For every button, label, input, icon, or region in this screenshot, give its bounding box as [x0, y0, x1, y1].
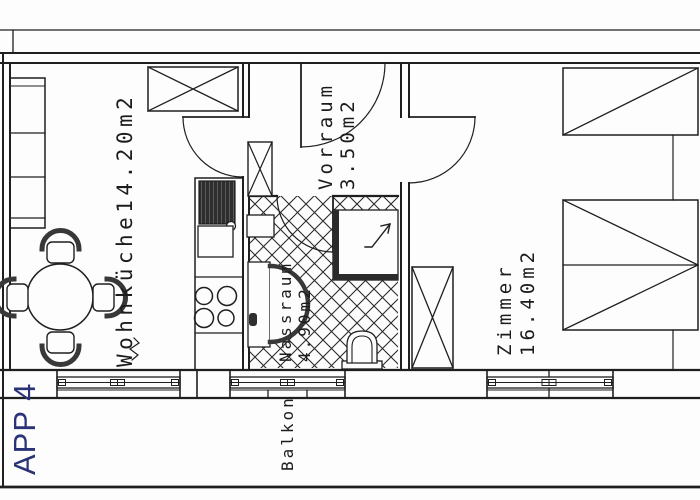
- bottom-wall-windows: [0, 370, 700, 398]
- room-name: Nassraum: [276, 261, 295, 362]
- kitchen-sink-drainer: [199, 181, 235, 224]
- apartment-title: APP 4: [8, 383, 42, 475]
- room-label-zimmer: Zimmer 16.40m2: [494, 248, 540, 356]
- bedroom-wardrobe: [412, 267, 453, 368]
- room-name: Zimmer: [494, 248, 517, 356]
- chair: [42, 332, 79, 365]
- top-wardrobe: [148, 67, 238, 111]
- apartment-title-text: APP 4: [8, 383, 42, 475]
- room-area: 16.40m2: [517, 248, 540, 356]
- room-label-text: Wohnküche14.20m2: [112, 93, 138, 367]
- livingroom-door: [183, 117, 249, 177]
- room-name: Vorraum: [315, 82, 337, 190]
- kitchen-sink-basin: [198, 226, 233, 257]
- bedroom-door: [409, 117, 475, 183]
- kitchen-counter: [195, 178, 244, 370]
- chair: [42, 231, 79, 263]
- stove-burners: [195, 287, 237, 328]
- room-label-nassraum: Nassraum 4.90m2: [276, 261, 314, 362]
- room-area: 4.90m2: [295, 261, 314, 362]
- shower: [333, 210, 398, 280]
- dining-set: [0, 231, 126, 365]
- sideboard: [10, 78, 45, 228]
- dining-table: [27, 264, 93, 330]
- chair: [0, 279, 28, 316]
- room-label-text: Balkon: [278, 395, 298, 471]
- duct-shaft: [248, 142, 272, 196]
- room-label-balkon: Balkon: [278, 395, 298, 471]
- window-symbol: [57, 377, 180, 388]
- bed-double: [563, 200, 698, 330]
- window-symbol: [487, 370, 613, 398]
- floor-plan: Wohnküche14.20m2 Vorraum 3.50m2 Nassraum…: [0, 0, 700, 500]
- bed-single: [563, 68, 698, 135]
- room-label-wohnkueche: Wohnküche14.20m2: [112, 93, 138, 367]
- plan-linework: [0, 0, 700, 500]
- room-area: 3.50m2: [337, 82, 359, 190]
- room-label-vorraum: Vorraum 3.50m2: [315, 82, 359, 190]
